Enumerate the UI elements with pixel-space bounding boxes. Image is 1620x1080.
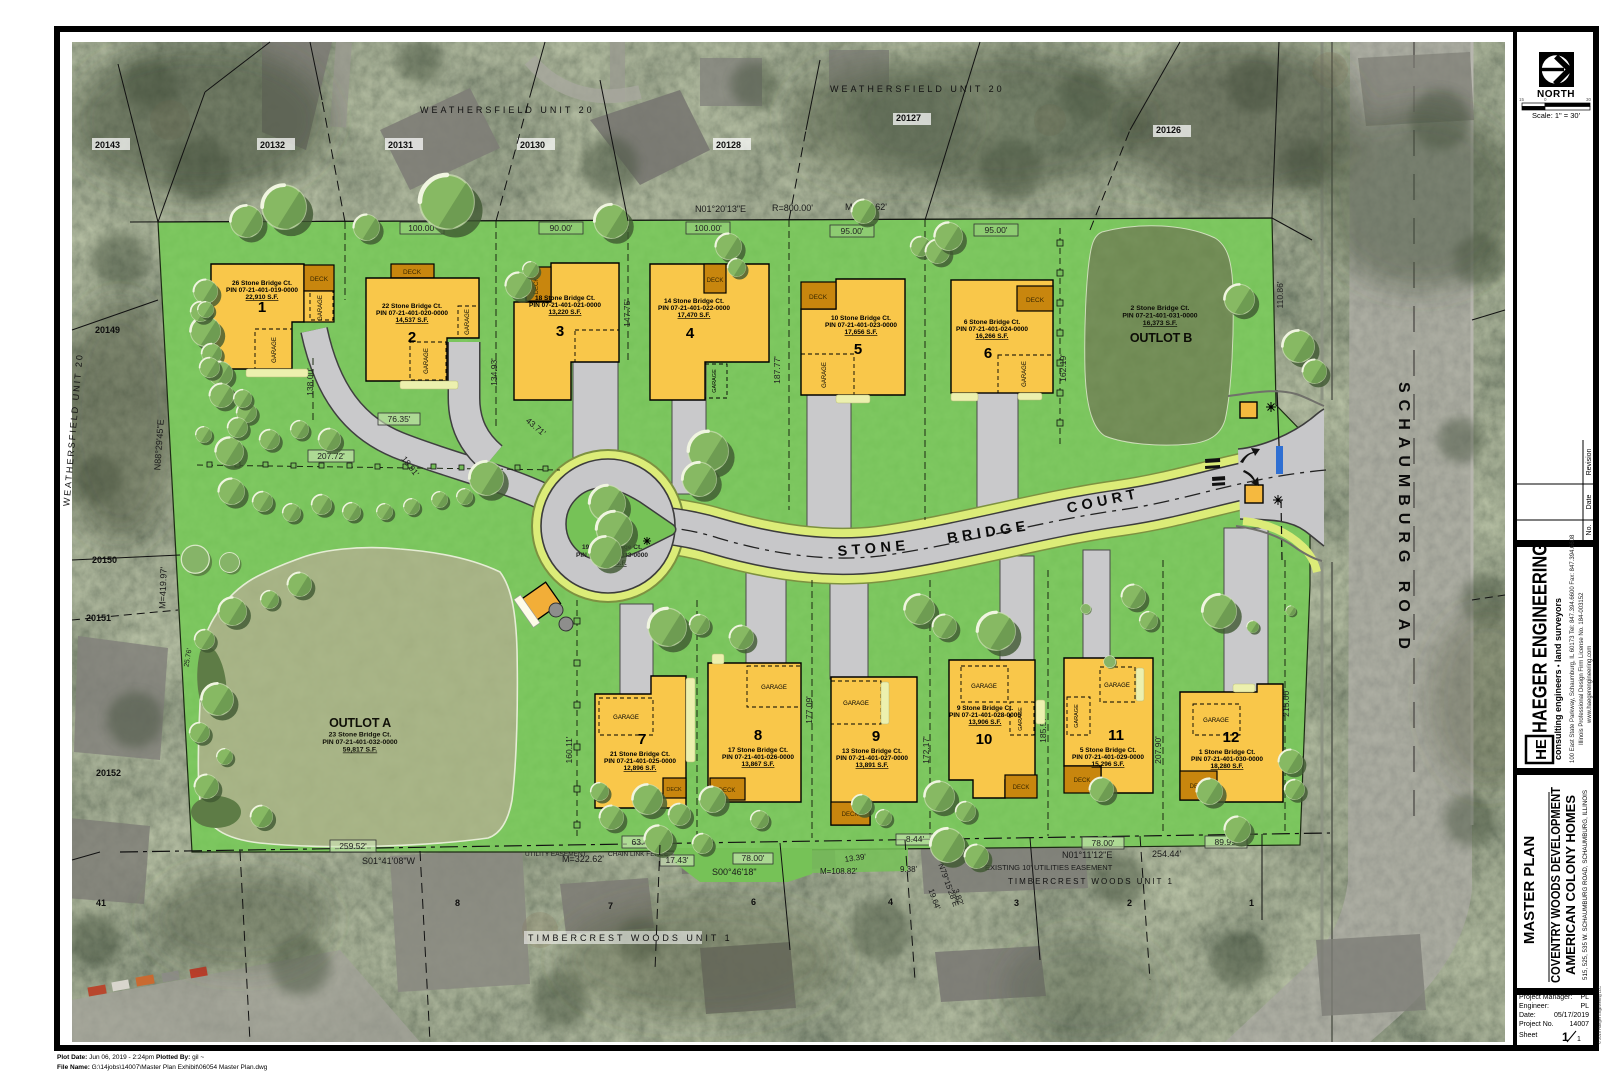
svg-text:11: 11: [1108, 727, 1124, 744]
svg-text:78.00': 78.00': [1092, 838, 1115, 848]
svg-text:S01°41'08"W: S01°41'08"W: [362, 856, 416, 866]
svg-text:TIMBERCREST WOODS UNIT 1: TIMBERCREST WOODS UNIT 1: [528, 933, 733, 943]
svg-text:GARAGE: GARAGE: [424, 348, 430, 374]
svg-text:7: 7: [638, 731, 646, 748]
svg-text:GARAGE: GARAGE: [318, 295, 324, 321]
svg-text:20127: 20127: [896, 113, 921, 123]
svg-text:COVENTRY WOODS DEVELOPMENT: COVENTRY WOODS DEVELOPMENT: [1548, 787, 1563, 983]
svg-text:100 East State Parkway, Schaum: 100 East State Parkway, Schaumburg, IL 6…: [1570, 534, 1576, 763]
svg-text:12,896 S.F.: 12,896 S.F.: [624, 765, 657, 772]
svg-text:76.35': 76.35': [388, 414, 411, 424]
svg-text:100.00': 100.00': [694, 223, 722, 233]
svg-text:160.11': 160.11': [564, 736, 574, 763]
svg-text:GARAGE: GARAGE: [1074, 704, 1080, 728]
svg-text:259.52': 259.52': [339, 841, 367, 851]
svg-text:13 Stone Bridge Ct.: 13 Stone Bridge Ct.: [842, 748, 902, 755]
svg-text:14 Stone Bridge Ct.: 14 Stone Bridge Ct.: [664, 298, 724, 305]
svg-text:Project Manager:: Project Manager:: [1519, 994, 1572, 1001]
svg-text:Scale: 1" = 30': Scale: 1" = 30': [1532, 111, 1581, 120]
svg-text:Revision: Revision: [1586, 448, 1593, 475]
svg-text:20150: 20150: [92, 555, 117, 565]
svg-text:DECK: DECK: [1074, 778, 1091, 784]
svg-text:PIN 07-21-401-028-0000: PIN 07-21-401-028-0000: [949, 712, 1021, 719]
svg-text:PL: PL: [1580, 994, 1589, 1001]
svg-text:2: 2: [408, 329, 416, 346]
svg-text:41: 41: [96, 898, 106, 908]
svg-text:6: 6: [984, 345, 992, 362]
svg-text:PIN 07-21-401-020-0000: PIN 07-21-401-020-0000: [376, 310, 448, 317]
svg-text:20152: 20152: [96, 768, 121, 778]
svg-text:95.00': 95.00': [841, 226, 864, 236]
svg-text:GARAGE: GARAGE: [712, 369, 718, 393]
svg-text:DECK: DECK: [666, 787, 682, 793]
svg-text:20143: 20143: [95, 140, 120, 150]
svg-text:GARAGE: GARAGE: [1203, 718, 1229, 724]
svg-text:GARAGE: GARAGE: [272, 337, 278, 363]
svg-text:16,373 S.F.: 16,373 S.F.: [1143, 320, 1177, 327]
svg-text:S00°46'18": S00°46'18": [712, 867, 757, 877]
svg-text:AMERICAN COLONY HOMES: AMERICAN COLONY HOMES: [1563, 795, 1578, 975]
svg-text:1 Stone Bridge Ct.: 1 Stone Bridge Ct.: [1199, 749, 1256, 756]
svg-text:SCHAUMBURG ROAD: SCHAUMBURG ROAD: [1395, 382, 1412, 656]
svg-text:4: 4: [888, 897, 893, 907]
svg-text:9.38': 9.38': [900, 865, 918, 874]
svg-text:GARAGE: GARAGE: [1104, 683, 1130, 689]
svg-text:PIN 07-21-401-022-0000: PIN 07-21-401-022-0000: [658, 305, 730, 312]
svg-text:30: 30: [1586, 97, 1592, 102]
svg-text:3: 3: [1014, 898, 1019, 908]
svg-text:N01°20'13"E: N01°20'13"E: [695, 204, 746, 214]
svg-text:515, 525, 535 W. SCHAUMBURG RO: 515, 525, 535 W. SCHAUMBURG ROAD, SCHAUM…: [1582, 789, 1589, 980]
svg-text:14007: 14007: [1570, 1021, 1590, 1028]
svg-text:EXISTING 10' UTILITIES EASEMEN: EXISTING 10' UTILITIES EASEMENT: [985, 863, 1113, 872]
svg-text:22 Stone Bridge Ct.: 22 Stone Bridge Ct.: [382, 303, 442, 310]
svg-text:8.44': 8.44': [906, 834, 925, 844]
svg-text:UTILITY EASEMENT: UTILITY EASEMENT: [525, 851, 587, 858]
svg-text:PIN 07-21-401-025-0000: PIN 07-21-401-025-0000: [604, 758, 676, 765]
svg-text:OUTLOT B: OUTLOT B: [1130, 331, 1192, 345]
svg-text:GARAGE: GARAGE: [1022, 361, 1028, 387]
svg-text:Sheet: Sheet: [1519, 1032, 1537, 1039]
svg-text:172.17': 172.17': [921, 736, 931, 764]
svg-text:177.09': 177.09': [804, 696, 814, 724]
svg-text:2: 2: [1127, 898, 1132, 908]
svg-text:20149: 20149: [95, 325, 120, 335]
svg-text:PIN 07-21-401-032-0000: PIN 07-21-401-032-0000: [322, 739, 397, 746]
svg-text:File Name: G:\14jobs\14007\Ma: File Name: G:\14jobs\14007\Master Plan E…: [57, 1064, 268, 1071]
svg-text:20126: 20126: [1156, 125, 1181, 135]
svg-text:DECK: DECK: [707, 278, 724, 284]
svg-text:15: 15: [1519, 97, 1525, 102]
svg-text:DECK: DECK: [809, 294, 828, 301]
svg-text:05/17/2019: 05/17/2019: [1554, 1012, 1589, 1019]
svg-text:5: 5: [854, 341, 862, 358]
svg-text:26 Stone Bridge Ct.: 26 Stone Bridge Ct.: [232, 280, 292, 287]
svg-text:DECK: DECK: [1026, 297, 1045, 304]
svg-text:147.75': 147.75': [622, 299, 632, 327]
svg-text:14,537 S.F.: 14,537 S.F.: [396, 317, 429, 324]
svg-text:PIN 07-21-401-021-0000: PIN 07-21-401-021-0000: [529, 302, 601, 309]
svg-text:20128: 20128: [716, 140, 741, 150]
svg-text:10 Stone Bridge Ct.: 10 Stone Bridge Ct.: [831, 315, 891, 322]
svg-text:Illinois Professional Design F: Illinois Professional Design Firm Licens…: [1579, 592, 1585, 745]
svg-text:17,470 S.F.: 17,470 S.F.: [678, 312, 711, 319]
svg-text:8: 8: [754, 727, 762, 744]
svg-text:10: 10: [976, 731, 993, 748]
svg-text:5 Stone Bridge Ct.: 5 Stone Bridge Ct.: [1080, 747, 1137, 754]
svg-text:59,817 S.F.: 59,817 S.F.: [343, 747, 377, 754]
svg-text:134.93': 134.93': [489, 358, 499, 386]
svg-text:PIN 07-21-401-027-0000: PIN 07-21-401-027-0000: [836, 755, 908, 762]
svg-text:Plot Date: Jun 06, 2019 - 2:2: Plot Date: Jun 06, 2019 - 2:24pm Plotted…: [57, 1054, 204, 1061]
svg-text:1: 1: [258, 299, 266, 316]
svg-text:GARAGE: GARAGE: [822, 362, 828, 388]
svg-text:No.: No.: [1586, 525, 1593, 536]
svg-text:17 Stone Bridge Ct.: 17 Stone Bridge Ct.: [728, 747, 788, 754]
svg-text:PL: PL: [1580, 1003, 1589, 1010]
svg-text:8: 8: [455, 898, 460, 908]
svg-text:MASTER PLAN: MASTER PLAN: [1521, 836, 1538, 944]
svg-text:20132: 20132: [260, 140, 285, 150]
svg-text:PIN 07-21-401-026-0000: PIN 07-21-401-026-0000: [722, 754, 794, 761]
svg-text:Engineer:: Engineer:: [1519, 1003, 1549, 1010]
svg-text:6: 6: [751, 897, 756, 907]
svg-text:WEATHERSFIELD UNIT 20: WEATHERSFIELD UNIT 20: [420, 105, 595, 115]
svg-text:DECK: DECK: [310, 276, 329, 283]
svg-text:78.00': 78.00': [742, 853, 765, 863]
svg-text:187.77': 187.77': [772, 356, 782, 384]
svg-text:N01°11'12"E: N01°11'12"E: [1062, 850, 1112, 860]
svg-text:HAEGER ENGINEERING: HAEGER ENGINEERING: [1530, 543, 1552, 733]
svg-text:PIN 07-21-401-030-0000: PIN 07-21-401-030-0000: [1191, 756, 1263, 763]
svg-text:DECK: DECK: [1013, 785, 1030, 791]
svg-text:17,656 S.F.: 17,656 S.F.: [845, 329, 878, 336]
svg-text:18 Stone Bridge Ct.: 18 Stone Bridge Ct.: [535, 295, 595, 302]
svg-text:GARAGE: GARAGE: [613, 715, 639, 721]
svg-text:20131: 20131: [388, 140, 413, 150]
svg-text:16,266 S.F.: 16,266 S.F.: [976, 333, 1009, 340]
svg-text:6 Stone Bridge Ct.: 6 Stone Bridge Ct.: [964, 319, 1021, 326]
svg-text:207.90': 207.90': [1153, 736, 1163, 764]
svg-text:GARAGE: GARAGE: [971, 684, 997, 690]
svg-text:R=800.00': R=800.00': [772, 203, 813, 213]
svg-text:Date: Date: [1586, 495, 1593, 510]
svg-text:GARAGE: GARAGE: [843, 701, 869, 707]
svg-text:13,891 S.F.: 13,891 S.F.: [856, 762, 889, 769]
svg-text:9 Stone Bridge Ct.: 9 Stone Bridge Ct.: [957, 705, 1014, 712]
svg-text:90.00': 90.00': [550, 223, 573, 233]
svg-text:3: 3: [556, 323, 564, 340]
svg-text:20130: 20130: [520, 140, 545, 150]
svg-text:95.00': 95.00': [985, 225, 1008, 235]
svg-text:WEATHERSFIELD UNIT 20: WEATHERSFIELD UNIT 20: [830, 84, 1005, 94]
svg-text:PIN 07-21-401-031-0000: PIN 07-21-401-031-0000: [1122, 313, 1197, 320]
svg-text:13,906 S.F.: 13,906 S.F.: [969, 719, 1002, 726]
svg-text:PIN 07-21-401-023-0000: PIN 07-21-401-023-0000: [825, 322, 897, 329]
svg-text:1: 1: [1562, 1030, 1569, 1044]
svg-text:consulting engineers • land: consulting engineers • land surveyors: [1553, 598, 1563, 760]
svg-text:18,280 S.F.: 18,280 S.F.: [1211, 763, 1244, 770]
svg-text:NORTH: NORTH: [1537, 89, 1575, 100]
svg-text:PIN 07-21-401-029-0000: PIN 07-21-401-029-0000: [1072, 754, 1144, 761]
svg-text:© 2019 Haeger Engineering LLC: © 2019 Haeger Engineering LLC: [1597, 986, 1602, 1044]
svg-text:DECK: DECK: [403, 269, 422, 276]
svg-text:21 Stone Bridge Ct.: 21 Stone Bridge Ct.: [610, 751, 670, 758]
svg-text:2 Stone Bridge Ct.: 2 Stone Bridge Ct.: [1131, 305, 1190, 312]
svg-text:9: 9: [872, 728, 880, 745]
svg-text:PIN 07-21-401-024-0000: PIN 07-21-401-024-0000: [956, 326, 1028, 333]
svg-text:M=419.97': M=419.97': [157, 566, 168, 609]
svg-text:M=108.82': M=108.82': [820, 867, 858, 876]
svg-text:13,220 S.F.: 13,220 S.F.: [549, 309, 582, 316]
svg-text:1: 1: [1577, 1036, 1581, 1043]
svg-text:162.19': 162.19': [1058, 354, 1068, 382]
svg-text:15,296 S.F.: 15,296 S.F.: [1092, 761, 1125, 768]
svg-text:Date:: Date:: [1519, 1012, 1536, 1019]
svg-text:110.86': 110.86': [1275, 281, 1285, 308]
svg-text:GARAGE: GARAGE: [465, 309, 471, 335]
svg-text:7: 7: [608, 901, 613, 911]
svg-text:OUTLOT A: OUTLOT A: [329, 716, 391, 730]
svg-text:12: 12: [1223, 729, 1240, 746]
svg-text:1: 1: [1249, 898, 1254, 908]
svg-text:Project No.: Project No.: [1519, 1021, 1554, 1028]
svg-text:PIN 07-21-401-019-0000: PIN 07-21-401-019-0000: [226, 287, 298, 294]
svg-text:GARAGE: GARAGE: [761, 685, 787, 691]
svg-text:254.44': 254.44': [1152, 849, 1182, 859]
svg-text:13,867 S.F.: 13,867 S.F.: [742, 761, 775, 768]
svg-text:4: 4: [686, 325, 695, 342]
svg-text:www.haegerengineering.com: www.haegerengineering.com: [1587, 646, 1593, 724]
svg-text:23 Stone Bridge Ct.: 23 Stone Bridge Ct.: [329, 732, 392, 739]
svg-text:HE: HE: [1533, 739, 1550, 760]
